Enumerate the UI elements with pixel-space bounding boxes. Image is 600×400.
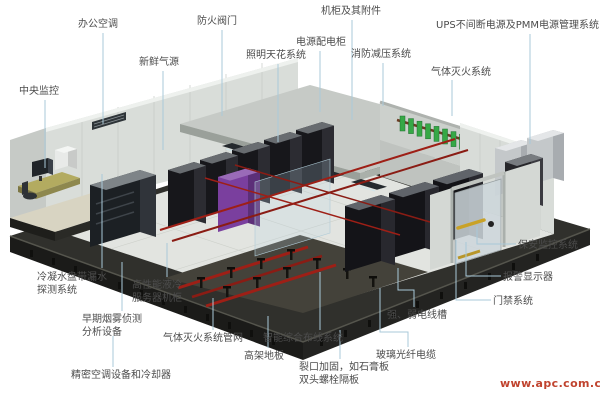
door-alarm-device (488, 221, 494, 227)
label-gas-suppression-piping: 气体灭火系统管网 (163, 332, 243, 345)
label-early-smoke-detection: 早期烟雾侦测 分析设备 (82, 313, 142, 339)
label-office-ac: 办公空调 (78, 18, 118, 31)
label-cable-trough: 强、弱电线槽 (387, 309, 447, 322)
label-power-distribution-cabinet: 电源配电柜 (296, 36, 346, 49)
label-fire-damper: 防火阀门 (197, 15, 237, 28)
watermark-url: www.apc.com.cn (500, 377, 600, 390)
label-security-monitoring: 保安监控系统 (518, 239, 578, 252)
label-gas-fire-suppression: 气体灭火系统 (431, 66, 491, 79)
purple-server-rack (218, 168, 260, 232)
label-alarm-display: 报警显示器 (503, 271, 553, 284)
label-fresh-air: 新鲜气源 (139, 56, 179, 69)
label-fiber-optic-cable: 玻璃光纤电缆 (376, 349, 436, 362)
label-cabinet-accessories: 机柜及其附件 (321, 5, 381, 18)
label-access-control: 门禁系统 (493, 295, 533, 308)
label-central-monitoring: 中央监控 (19, 85, 59, 98)
label-raised-floor: 高架地板 (244, 350, 284, 363)
computer-tower (55, 146, 77, 170)
label-fire-pressure-relief: 消防减压系统 (351, 48, 411, 61)
datacenter-diagram: 办公空调防火阀门新鲜气源照明天花系统机柜及其附件电源配电柜UPS不间断电源及PM… (0, 0, 600, 400)
label-liquid-cooled-server-rack: 高性能液冷 服务器机柜 (132, 279, 182, 305)
label-crack-reinforcement: 裂口加固，如石膏板 双头螺栓隔板 (299, 361, 389, 387)
label-precision-ac-cooler: 精密空调设备和冷却器 (71, 369, 171, 382)
label-intelligent-cabling: 智能综合布线系统 (263, 332, 343, 345)
glass-door (455, 179, 501, 264)
label-condensate-leak-detection: 冷凝水盘带漏水 探测系统 (37, 271, 107, 297)
label-ups-pmm-power: UPS不间断电源及PMM电源管理系统 (436, 19, 599, 32)
label-lighting-ceiling: 照明天花系统 (246, 49, 306, 62)
office-left-wall (10, 128, 46, 222)
